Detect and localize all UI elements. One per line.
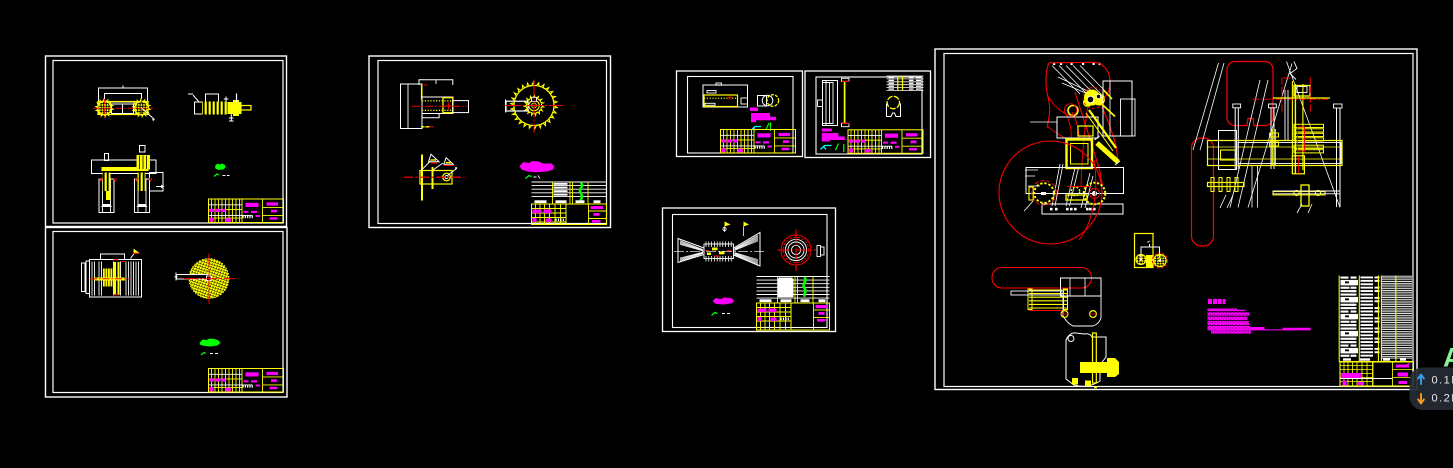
svg-text:0.2K: 0.2K xyxy=(1432,392,1453,404)
svg-text:0.1K: 0.1K xyxy=(1432,374,1453,386)
